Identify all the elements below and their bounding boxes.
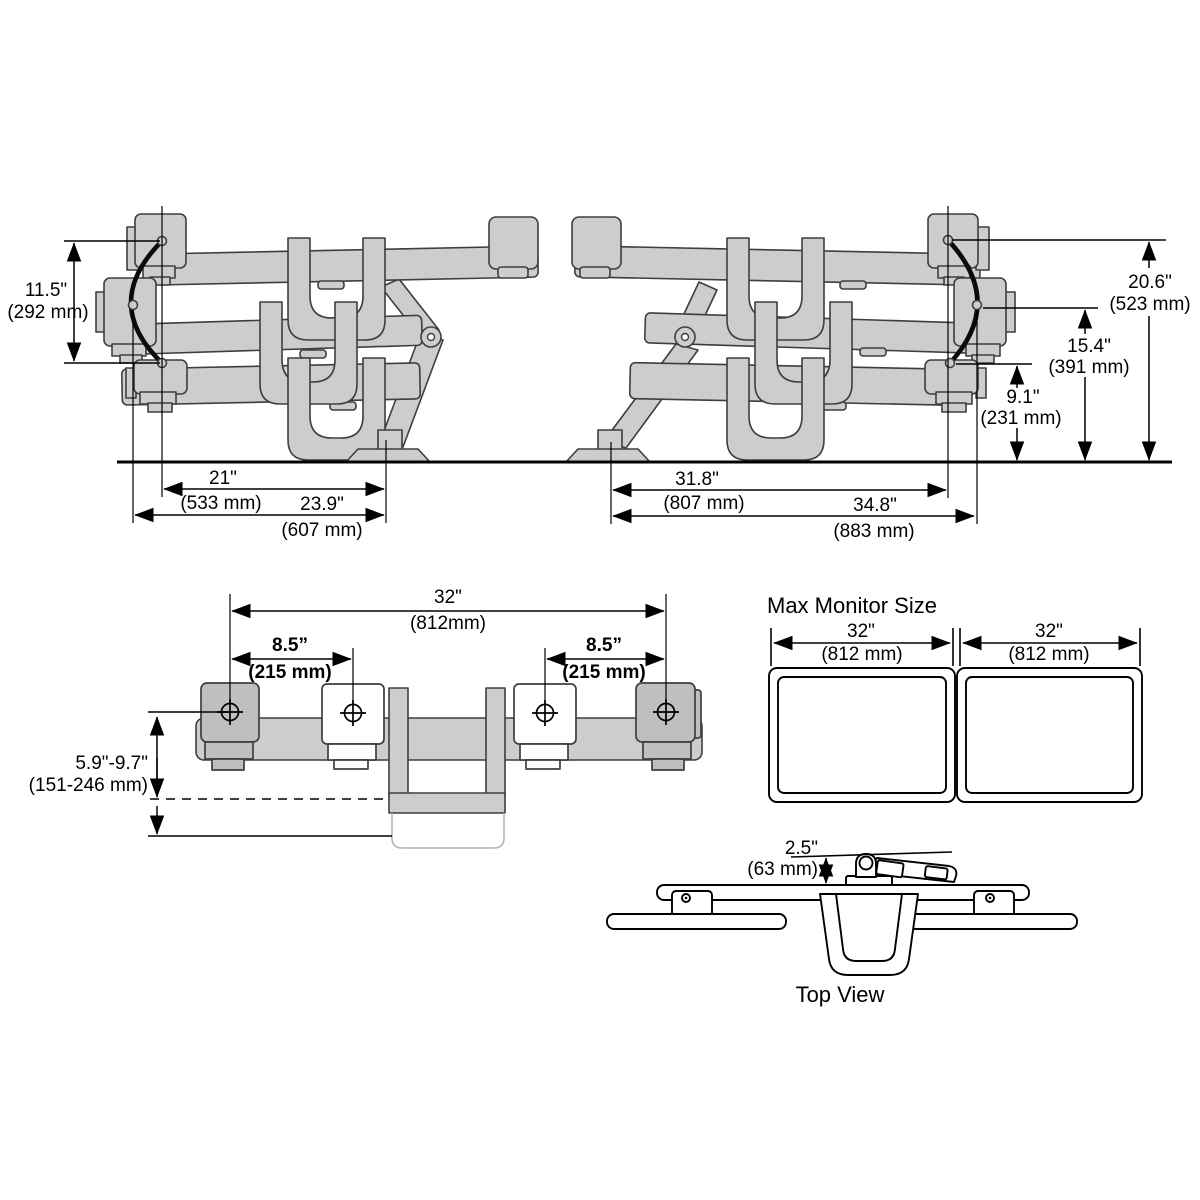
dim-offset-left-mm: (215 mm) xyxy=(248,662,331,683)
clamp-tab xyxy=(860,348,886,356)
dim-height-low-in: 9.1" xyxy=(1006,387,1039,408)
arm-bar-high xyxy=(575,246,981,285)
max-monitor-title: Max Monitor Size xyxy=(767,593,937,618)
arm-end-step xyxy=(580,267,610,278)
dim-reach-in: 21" xyxy=(209,468,237,489)
arm-bar-high xyxy=(158,246,539,285)
dim-depth-mm: (883 mm) xyxy=(833,521,914,542)
monitor-left-screen xyxy=(778,677,946,793)
clamp-tab xyxy=(318,281,344,289)
dim-lift-in: 5.9"-9.7" xyxy=(75,753,148,774)
base-foot xyxy=(566,449,650,462)
screw-left-dot xyxy=(685,897,688,900)
dim-reach-in: 31.8" xyxy=(675,469,719,490)
crossbar xyxy=(196,718,702,760)
monitor-left-width-mm: (812 mm) xyxy=(821,644,902,665)
arm-clamp xyxy=(876,860,904,877)
pivot-mid xyxy=(973,301,982,310)
dim-height-mid-mm: (391 mm) xyxy=(1048,357,1129,378)
arm-end-block-high xyxy=(572,217,621,269)
arm-end-block-high xyxy=(489,217,538,269)
dim-height-top-mm: (523 mm) xyxy=(1109,294,1190,315)
front-view-drawing xyxy=(196,683,702,848)
dim-width-mm: (812mm) xyxy=(410,613,486,634)
screw-right-dot xyxy=(989,897,992,900)
top-view-label: Top View xyxy=(796,982,885,1007)
dim-clearance-in: 2.5" xyxy=(785,838,818,859)
monitor-bar-left xyxy=(607,914,786,929)
riser-post-left xyxy=(389,688,408,795)
monitor-arm-dimension-diagram: 11.5" (292 mm) 21" (533 mm) 23.9" (607 m… xyxy=(0,0,1200,1200)
dim-width-in: 32" xyxy=(434,587,462,608)
dim-depth-in: 23.9" xyxy=(300,494,344,515)
dimension-drawing-page: 11.5" (292 mm) 21" (533 mm) 23.9" (607 m… xyxy=(0,0,1200,1200)
monitor-right-width-in: 32" xyxy=(1035,621,1063,642)
top-view-drawing: 2.5" (63 mm) Top View xyxy=(607,838,1077,1007)
riser-bottom xyxy=(389,793,505,813)
dim-height-range-mm: (292 mm) xyxy=(7,302,88,323)
dim-offset-left-in: 8.5” xyxy=(272,635,308,656)
arm-end-step xyxy=(498,267,528,278)
riser-post-right xyxy=(486,688,505,795)
monitor-right-width-mm: (812 mm) xyxy=(1008,644,1089,665)
dim-height-top-in: 20.6" xyxy=(1128,272,1172,293)
max-monitor-size-panel: Max Monitor Size 32" (812 mm) 32" (812 m… xyxy=(767,593,1142,802)
elbow-pin xyxy=(428,334,435,341)
clamp-tab xyxy=(300,350,326,358)
dim-depth-in: 34.8" xyxy=(853,495,897,516)
dim-clearance-mm: (63 mm) xyxy=(747,859,818,880)
pivot-mid xyxy=(129,301,138,310)
dim-lift-mm: (151-246 mm) xyxy=(29,775,148,796)
riser-channel-inner xyxy=(836,894,902,961)
dim-height-mid-in: 15.4" xyxy=(1067,336,1111,357)
dim-reach-mm: (807 mm) xyxy=(663,493,744,514)
monitor-right-screen xyxy=(966,677,1133,793)
clamp-tab xyxy=(840,281,866,289)
dim-offset-right-in: 8.5” xyxy=(586,635,622,656)
dim-depth-mm: (607 mm) xyxy=(281,520,362,541)
arm-fork xyxy=(925,866,948,880)
pivot-axis xyxy=(860,857,873,870)
elbow-pin xyxy=(682,334,689,341)
dim-reach-mm: (533 mm) xyxy=(180,493,261,514)
base-foot xyxy=(346,449,430,462)
mount-block-right-end xyxy=(636,683,701,770)
monitor-left-width-in: 32" xyxy=(847,621,875,642)
monitor-bar-right xyxy=(898,914,1077,929)
dim-offset-right-mm: (215 mm) xyxy=(562,662,645,683)
dim-height-range-in: 11.5" xyxy=(25,280,67,301)
pivot-low xyxy=(946,359,955,368)
riser-ghost-outline xyxy=(392,813,504,848)
dim-height-low-mm: (231 mm) xyxy=(980,408,1061,429)
